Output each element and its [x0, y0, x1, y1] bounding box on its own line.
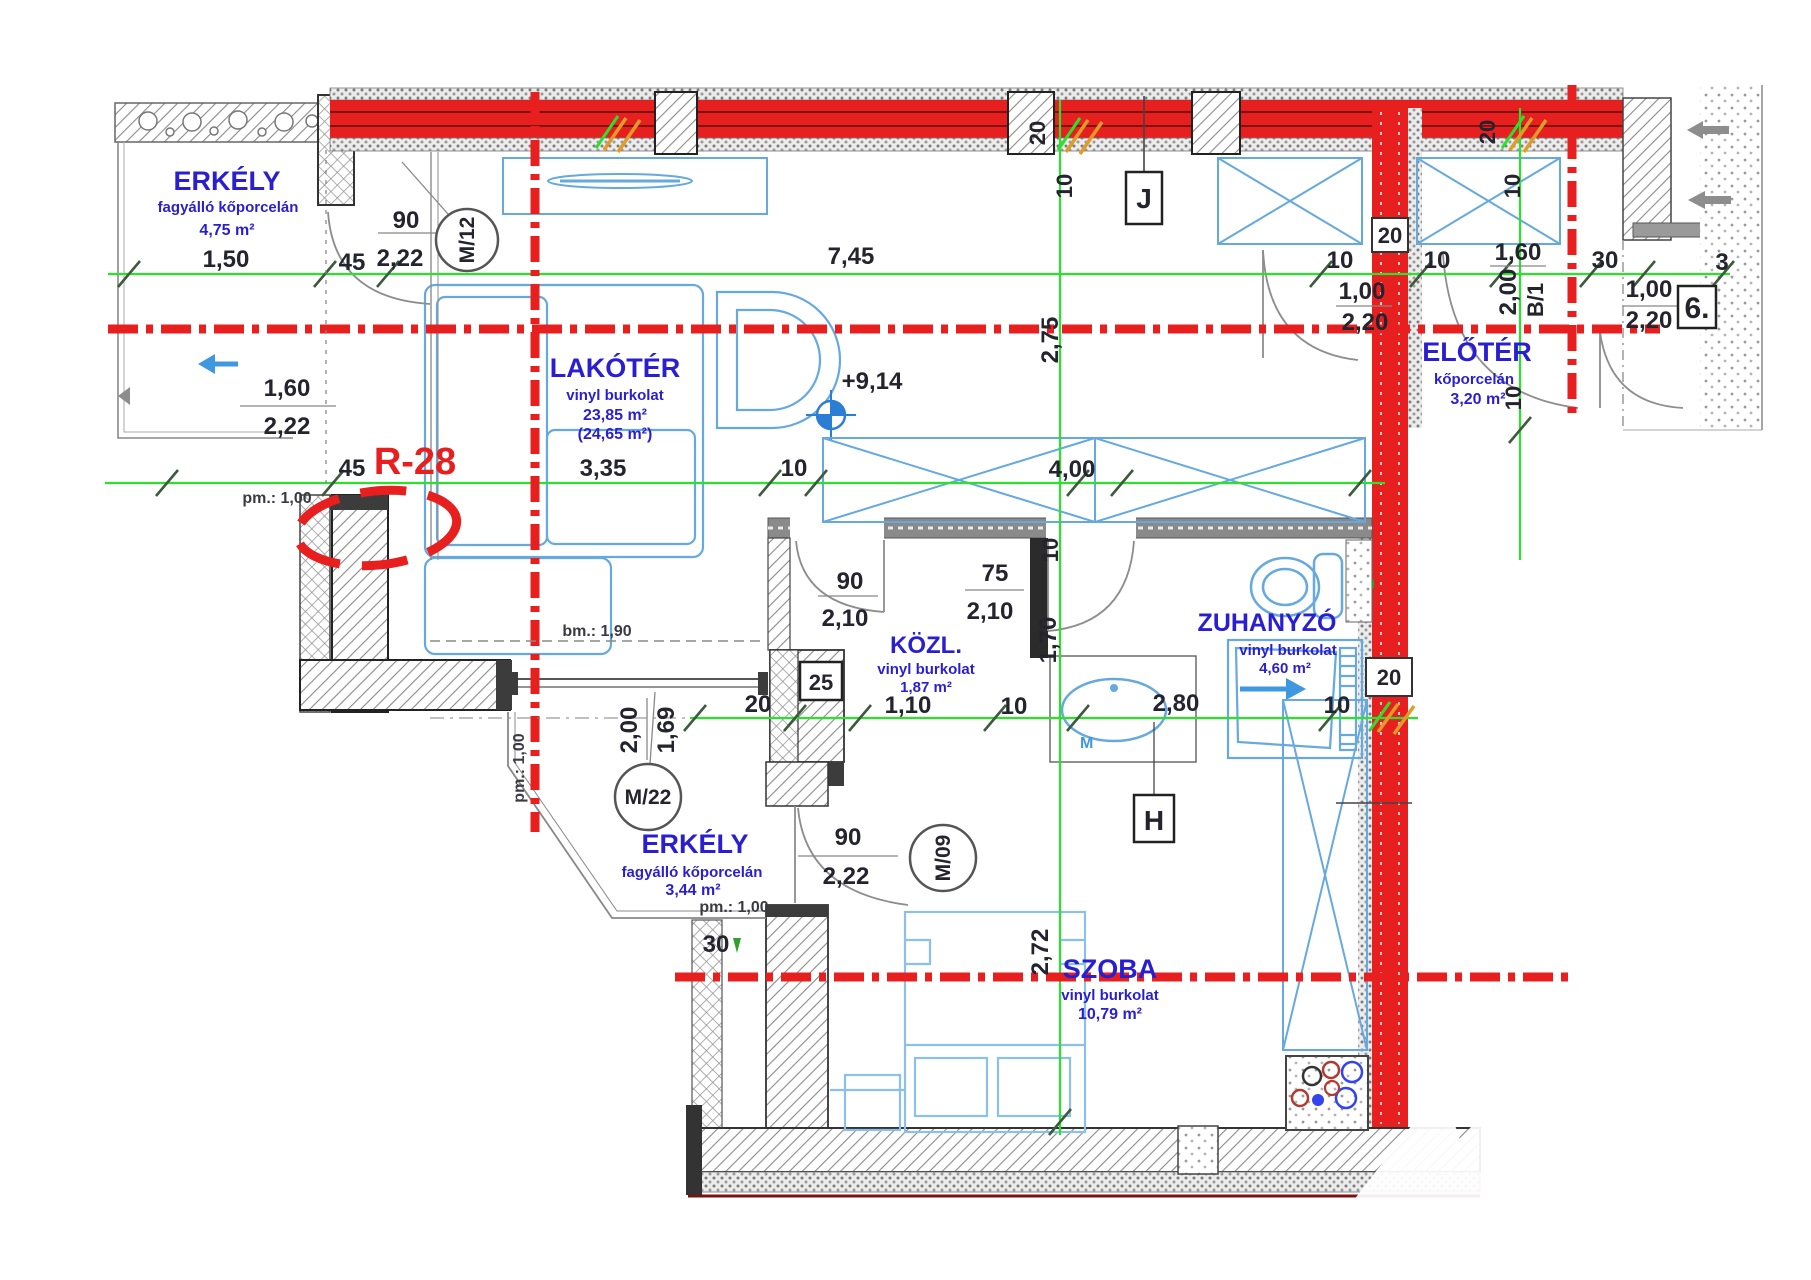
door-marker-m09: M/09	[932, 835, 955, 882]
blue-arrow-icon	[198, 354, 238, 374]
building-right-edge	[1623, 85, 1762, 430]
dim-wall-10-a: 10	[1052, 174, 1077, 198]
r28-label: R-28	[374, 441, 456, 483]
room-zuhanyzo-area: 4,60 m²	[1259, 660, 1311, 677]
dim-10-a: 10	[1327, 247, 1354, 274]
duct-shaft	[1346, 540, 1372, 622]
dim-222: 2,22	[377, 245, 424, 272]
dim-mid-10: 10	[781, 455, 808, 482]
room-zuhanyzo-name: ZUHANYZÓ	[1198, 607, 1337, 637]
dim-kozl-90: 90	[837, 568, 864, 595]
ref-box-h: H	[1144, 805, 1164, 836]
dim-400: 4,00	[1049, 456, 1096, 483]
dim-275: 2,75	[1037, 317, 1064, 364]
dim-100-b: 1,00	[1626, 276, 1673, 303]
level-label: +9,14	[842, 368, 903, 395]
dim-45: 45	[339, 249, 366, 276]
dim-wall-20-c: 20	[1378, 223, 1402, 248]
room-zuhanyzo-material: vinyl burkolat	[1239, 642, 1337, 659]
room-szoba-area: 10,79 m²	[1078, 1006, 1142, 1023]
dim-base-10-b: 10	[1324, 692, 1351, 719]
room-eloter-area: 3,20 m²	[1450, 391, 1505, 408]
dim-wall-25: 25	[809, 670, 833, 695]
dim-100-a: 1,00	[1339, 278, 1386, 305]
dim-wall-10-b: 10	[1500, 174, 1525, 198]
wardrobe-entry-right	[1417, 158, 1560, 244]
dim-m22-169: 1,69	[653, 707, 680, 754]
dim-wall-20-a: 20	[1025, 121, 1050, 145]
ref-box-j: J	[1136, 183, 1152, 214]
dim-m09-90: 90	[835, 824, 862, 851]
shower-arrow-icon	[1240, 678, 1306, 700]
dim-kozl-210: 2,10	[822, 605, 869, 632]
dim-balc1-160: 1,60	[264, 375, 311, 402]
dim-110: 1,10	[885, 692, 932, 719]
room-szoba-material: vinyl burkolat	[1061, 987, 1159, 1004]
room-eloter-name: ELŐTÉR	[1422, 336, 1532, 367]
dim-base-10-a: 10	[1001, 693, 1028, 720]
room-lakoter-area: 23,85 m²	[583, 407, 647, 424]
note-bm: bm.: 1,90	[562, 623, 631, 640]
dim-200-b1: 2,00	[1495, 269, 1522, 316]
dim-zuh-210: 2,10	[967, 598, 1014, 625]
note-pm-bottom: pm.: 1,00	[699, 899, 768, 916]
dim-10-eloter: 10	[1501, 386, 1526, 410]
door-marker-m12: M/12	[456, 217, 479, 264]
dim-220-b: 2,20	[1626, 307, 1673, 334]
dim-mid-45: 45	[339, 455, 366, 482]
balcony2-window-wall	[508, 672, 768, 695]
dim-3: 3	[1715, 249, 1728, 276]
room-erkely2-area: 3,44 m²	[665, 882, 720, 899]
floor-plan-page: ERKÉLY fagyálló kőporcelán 4,75 m² LAKÓT…	[0, 0, 1811, 1280]
down-tick-icon	[733, 938, 741, 953]
dim-m12-90: 90	[393, 207, 420, 234]
dim-280: 2,80	[1153, 690, 1200, 717]
room-eloter-material: kőporcelán	[1434, 371, 1514, 388]
floor-plan-drawing: ERKÉLY fagyálló kőporcelán 4,75 m² LAKÓT…	[0, 0, 1811, 1280]
door-marker-b1: B/1	[1523, 283, 1548, 317]
dim-170: 1,70	[1035, 617, 1062, 664]
dim-wall-20-b: 20	[1475, 120, 1500, 144]
room-erkely2-name: ERKÉLY	[641, 828, 748, 859]
dim-10-zuh-wall: 10	[1038, 538, 1063, 562]
top-main-wall	[330, 88, 1623, 154]
room-erkely1-name: ERKÉLY	[173, 165, 280, 196]
dim-zuh-75: 75	[982, 560, 1009, 587]
room-erkely2-material: fagyálló kőporcelán	[622, 864, 763, 881]
room-erkely1-area: 4,75 m²	[199, 222, 254, 239]
room-szoba-name: SZOBA	[1063, 954, 1158, 984]
room-lakoter-material: vinyl burkolat	[566, 387, 664, 404]
room-lakoter-name: LAKÓTÉR	[550, 352, 681, 383]
room-erkely1-material: fagyálló kőporcelán	[158, 199, 299, 216]
dim-balc2-30: 30	[703, 931, 730, 958]
dim-wall-20-d: 20	[1377, 665, 1401, 690]
szoba-west-wall	[692, 762, 828, 1182]
dim-10-b: 10	[1424, 247, 1451, 274]
note-pm-top: pm.: 1,00	[242, 490, 311, 507]
kitchen-counter	[503, 158, 767, 214]
dim-base-20: 20	[745, 691, 772, 718]
dim-m09-222: 2,22	[823, 863, 870, 890]
wardrobe-szoba	[1283, 700, 1367, 1050]
dim-335: 3,35	[580, 455, 627, 482]
level-marker-icon	[806, 390, 856, 440]
dim-m22-200: 2,00	[616, 707, 643, 754]
dim-745: 7,45	[828, 243, 875, 270]
wardrobe-entry-left	[1218, 158, 1362, 244]
sofa	[425, 285, 703, 654]
note-pm-side: pm.: 1,00	[511, 733, 528, 802]
room-kozl-name: KÖZL.	[890, 632, 962, 659]
dim-160-b1: 1,60	[1495, 239, 1542, 266]
room-lakoter-area-alt: (24,65 m²)	[578, 426, 653, 443]
dim-220-a: 2,20	[1342, 309, 1389, 336]
note-m-basin: M	[1080, 735, 1093, 752]
dim-30: 30	[1592, 247, 1619, 274]
dim-balc1-222: 2,22	[264, 413, 311, 440]
ref-boxes	[800, 172, 1716, 842]
ref-box-unit-6: 6.	[1684, 292, 1709, 325]
dim-150: 1,50	[203, 246, 250, 273]
room-kozl-material: vinyl burkolat	[877, 661, 975, 678]
dim-272: 2,72	[1027, 929, 1054, 976]
door-marker-m22: M/22	[625, 786, 672, 809]
pipe-shaft	[1286, 1056, 1368, 1130]
